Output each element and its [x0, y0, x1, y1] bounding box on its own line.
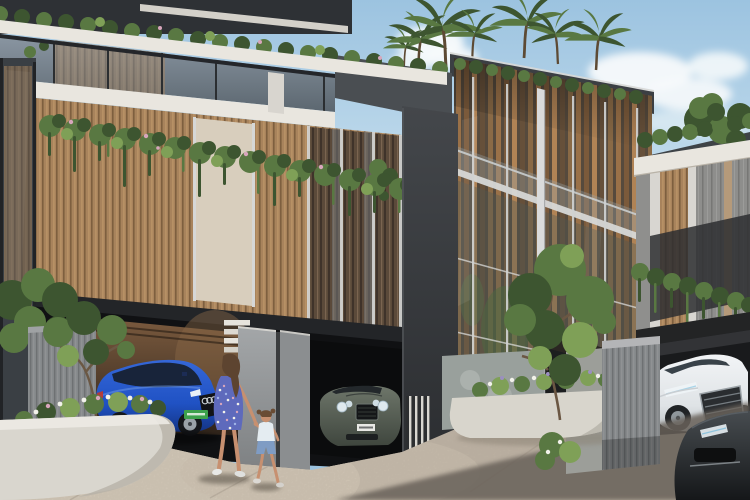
scene-svg	[0, 0, 750, 500]
rendering-canvas	[0, 0, 750, 500]
top	[257, 422, 275, 441]
pigtail	[257, 410, 262, 415]
mirror	[182, 372, 187, 376]
pigtail	[271, 409, 276, 414]
car-grey-coupe	[320, 386, 401, 446]
grille	[694, 448, 736, 462]
fence-right	[602, 336, 660, 470]
partition-walls	[238, 326, 310, 478]
bronze-louvres	[310, 127, 402, 332]
white-pillar	[268, 72, 284, 114]
